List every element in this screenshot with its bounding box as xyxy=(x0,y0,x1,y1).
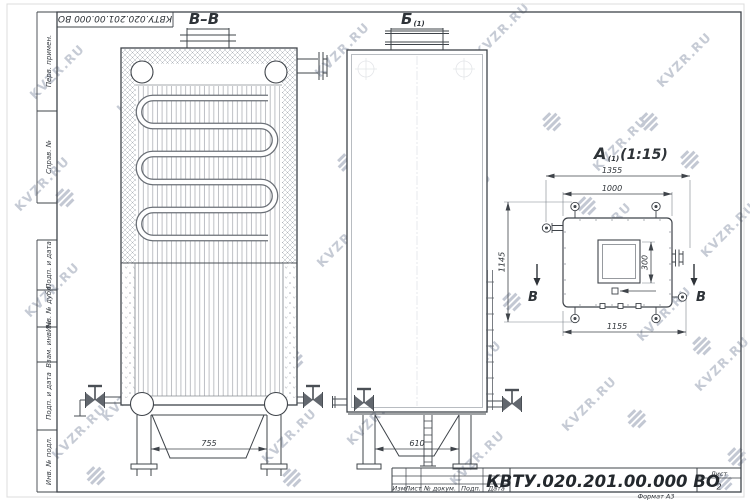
bb-top-nozzle xyxy=(297,52,327,80)
dim-1155: 1155 xyxy=(607,322,627,331)
tb-col-list: Лист xyxy=(404,485,422,493)
watermark-text: KVZR.RU xyxy=(259,405,320,466)
tb-col-dokum: № докум. xyxy=(423,485,456,493)
bb-dim-755: 755 xyxy=(151,439,267,449)
dim-610: 610 xyxy=(409,439,424,448)
view-a-label: А(1)(1:15) xyxy=(592,144,668,163)
frame-field: Перв. примен. xyxy=(45,35,53,88)
frame-designation-rotated: КВТУ.020.201.00.000 ВО xyxy=(58,13,172,23)
a-dim-1355: 1355 xyxy=(546,166,690,176)
sheet-label: Лист xyxy=(710,470,728,478)
kvzr-logo-icon xyxy=(52,185,77,210)
view-side-b: Б(1) xyxy=(332,10,522,469)
dim-1000: 1000 xyxy=(602,184,622,193)
watermark-text: KVZR.RU xyxy=(559,373,620,434)
kvzr-logo-icon xyxy=(499,289,524,314)
dim-1145: 1145 xyxy=(498,252,507,272)
title-designation: КВТУ.020.201.00.000 ВО xyxy=(486,472,720,491)
sheet-number: 2 xyxy=(716,483,721,492)
kvzr-logo-icon xyxy=(677,147,702,172)
watermark-text: KVZR.RU xyxy=(12,153,73,214)
kvzr-logo-icon xyxy=(689,333,714,358)
watermark-text: KVZR.RU xyxy=(654,29,715,90)
view-bb-label: В–В xyxy=(189,10,219,28)
kvzr-logo-icon xyxy=(724,444,749,469)
title-block: Изм Лист № докум. Подп. Дата КВТУ.020.20… xyxy=(392,468,741,500)
section-mark-b-left: В xyxy=(528,290,538,305)
format-note: Формат А3 xyxy=(637,493,674,500)
a-dim-1000: 1000 xyxy=(563,184,672,194)
dim-755: 755 xyxy=(201,439,216,448)
dim-1355: 1355 xyxy=(602,166,622,175)
tb-col-izm: Изм xyxy=(392,485,405,493)
frame-field: Взам. инв. № xyxy=(45,320,53,368)
drawing-canvas: KVZR.RU KVZR.RU KVZR.RU KVZR.RU KVZR.RU … xyxy=(0,0,750,500)
section-mark-b-right: В xyxy=(696,290,706,305)
frame-field: Справ. № xyxy=(45,140,53,174)
frame-field: Подп. и дата xyxy=(45,241,53,289)
frame-field: Инв. № подл. xyxy=(45,437,53,485)
valve-icon xyxy=(503,390,522,412)
kvzr-logo-icon xyxy=(624,406,649,431)
tb-col-podp: Подп. xyxy=(461,485,481,493)
valve-icon xyxy=(304,386,323,408)
watermark-text: KVZR.RU xyxy=(49,401,110,462)
b-dim-610: 610 xyxy=(375,439,459,449)
view-b-label: Б(1) xyxy=(401,10,425,28)
kvzr-logo-icon xyxy=(539,109,564,134)
kvzr-logo-icon xyxy=(83,463,108,488)
watermark-text: KVZR.RU xyxy=(698,199,750,260)
drawing-sheet: KVZR.RU KVZR.RU KVZR.RU KVZR.RU KVZR.RU … xyxy=(0,0,750,500)
frame-field: Подп. и дата xyxy=(45,372,53,420)
a-dim-1155: 1155 xyxy=(563,322,686,332)
dim-300: 300 xyxy=(641,255,650,270)
